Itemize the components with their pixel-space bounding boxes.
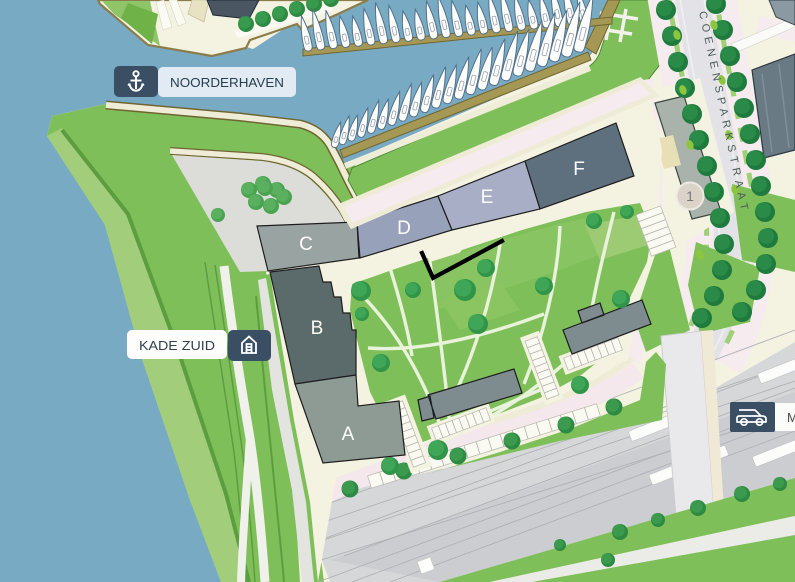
svg-text:D: D bbox=[397, 218, 411, 239]
svg-text:E: E bbox=[481, 187, 494, 208]
svg-text:C: C bbox=[299, 234, 313, 255]
svg-text:KADE ZUID: KADE ZUID bbox=[139, 338, 215, 353]
svg-text:A: A bbox=[342, 424, 355, 445]
svg-text:1: 1 bbox=[686, 188, 694, 204]
svg-text:NOORDERHAVEN: NOORDERHAVEN bbox=[170, 75, 284, 90]
svg-text:B: B bbox=[311, 318, 324, 339]
svg-text:M: M bbox=[787, 410, 795, 425]
svg-text:F: F bbox=[573, 159, 585, 180]
